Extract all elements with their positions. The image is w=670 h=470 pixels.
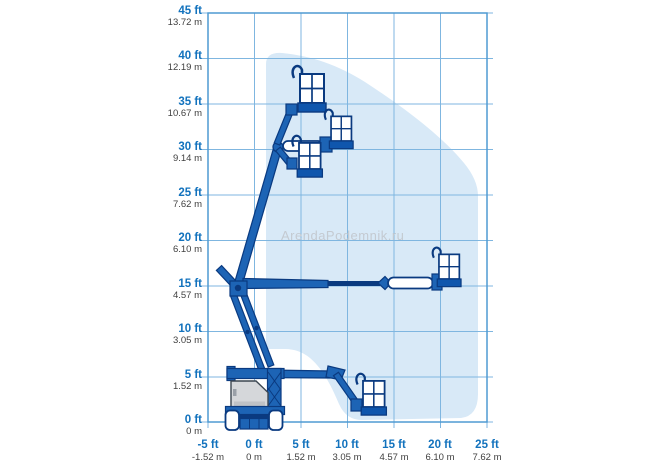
jib-horizontal <box>388 278 433 289</box>
y-tick-40ft-m: 12.19 m <box>90 62 202 73</box>
boom-pivot-pin <box>235 285 241 291</box>
y-tick-35ft-m: 10.67 m <box>90 108 202 119</box>
x-tick-25ft: 25 ft <box>457 439 517 452</box>
y-tick-10ft-m: 3.05 m <box>90 335 202 346</box>
low-platform-mount <box>351 399 362 411</box>
wheel-right <box>269 411 283 431</box>
riser-joint <box>245 330 249 334</box>
y-tick-30ft-m: 9.14 m <box>90 153 202 164</box>
lower-platform-mount <box>287 158 297 169</box>
wheel-left <box>226 411 240 431</box>
y-tick-20ft-m: 6.10 m <box>90 244 202 255</box>
y-tick-15ft-m: 4.57 m <box>90 290 202 301</box>
watermark-text: ArendaPodemnik.ru <box>281 228 404 243</box>
upper-platform-mount <box>286 104 297 115</box>
boom-extension <box>328 281 380 286</box>
y-tick-0ft-m: 0 m <box>90 426 202 437</box>
y-tick-45ft-m: 13.72 m <box>90 17 202 28</box>
x-tick-25ft-m: 7.62 m <box>457 452 517 463</box>
riser-joint <box>254 326 258 330</box>
body-vent <box>233 389 237 396</box>
main-boom-horizontal <box>243 279 328 289</box>
reach-diagram: 45 ft 13.72 m 40 ft 12.19 m 35 ft 10.67 … <box>0 0 670 470</box>
chassis-box <box>240 419 268 430</box>
y-tick-5ft-m: 1.52 m <box>90 381 202 392</box>
y-tick-25ft-m: 7.62 m <box>90 199 202 210</box>
